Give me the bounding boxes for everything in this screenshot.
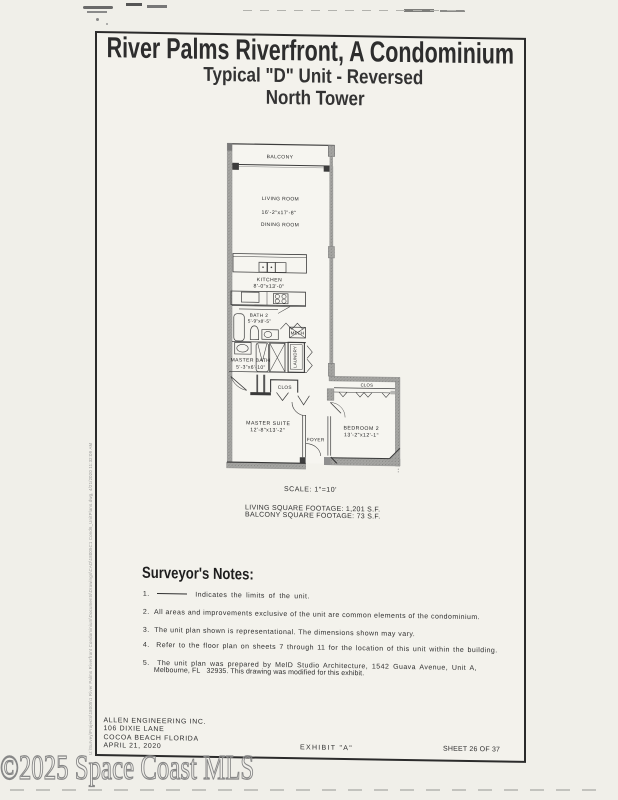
svg-text:16'-2"x17'-8": 16'-2"x17'-8" [262,209,297,216]
svg-text:BEDROOM 2: BEDROOM 2 [343,425,379,432]
svg-text:CLOS: CLOS [361,382,374,387]
svg-text:MECH: MECH [291,330,305,335]
svg-text:FOYER: FOYER [307,437,325,442]
svg-text:13'-2"x12'-1": 13'-2"x12'-1" [344,432,379,439]
svg-text:8'-0"x13'-0": 8'-0"x13'-0" [254,283,285,289]
svg-text:LIVING ROOM: LIVING ROOM [262,195,299,202]
svg-text:DINING ROOM: DINING ROOM [261,221,299,228]
svg-text:MASTER BATH: MASTER BATH [231,357,271,364]
svg-text:BALCONY: BALCONY [267,154,294,160]
svg-text:MASTER SUITE: MASTER SUITE [246,420,290,427]
svg-text:12'-8"x13'-2": 12'-8"x13'-2" [250,427,285,434]
svg-text:BATH 2: BATH 2 [250,312,268,317]
svg-text:CLOS: CLOS [278,384,292,389]
svg-text:KITCHEN: KITCHEN [257,277,282,283]
svg-text:5'-3"x6'-10": 5'-3"x6'-10" [236,364,265,370]
svg-text:LAUNDRY: LAUNDRY [293,345,298,367]
svg-text:5'-9"x8'-5": 5'-9"x8'-5" [248,318,271,323]
